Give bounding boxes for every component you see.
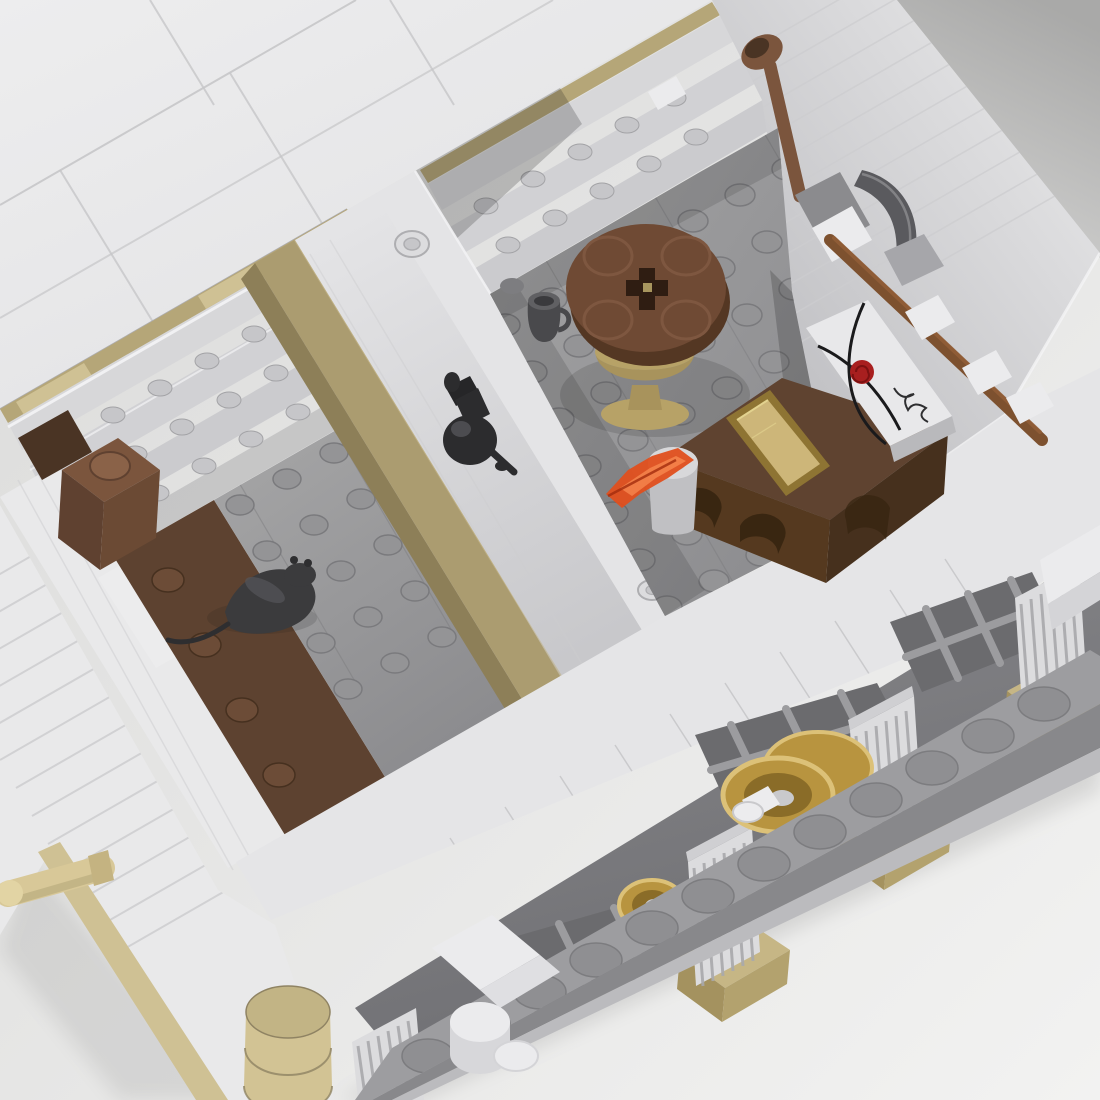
stud (327, 561, 355, 581)
stud (496, 237, 520, 253)
stud (428, 627, 456, 647)
stud (242, 326, 266, 342)
stud (381, 653, 409, 673)
stud (253, 541, 281, 561)
stud (794, 815, 846, 849)
stud (1018, 687, 1070, 721)
tan-corner-column (244, 986, 332, 1100)
hollow-stud-inner (404, 238, 420, 250)
stud (374, 535, 402, 555)
stud (263, 763, 295, 787)
stud (738, 847, 790, 881)
stud (401, 581, 429, 601)
stud (264, 365, 288, 381)
stud (307, 633, 335, 653)
stud (568, 144, 592, 160)
stud (615, 117, 639, 133)
stud (334, 679, 362, 699)
stud (732, 304, 762, 326)
render-stage (0, 0, 1100, 1100)
stud (101, 407, 125, 423)
stud (637, 156, 661, 172)
stud (590, 183, 614, 199)
stud (217, 392, 241, 408)
stud (354, 607, 382, 627)
stud (226, 495, 254, 515)
round-table (566, 224, 730, 366)
stud (286, 404, 310, 420)
stud (152, 568, 184, 592)
stud (962, 719, 1014, 753)
stud (195, 353, 219, 369)
stud (170, 419, 194, 435)
stud (684, 129, 708, 145)
stud (148, 380, 172, 396)
stud (347, 489, 375, 509)
stud (192, 458, 216, 474)
stud (543, 210, 567, 226)
stud (273, 469, 301, 489)
stud (752, 231, 782, 253)
stud (850, 783, 902, 817)
stud (906, 751, 958, 785)
stud (226, 698, 258, 722)
lego-interior-render (0, 0, 1100, 1100)
stud (239, 431, 263, 447)
stud (300, 515, 328, 535)
